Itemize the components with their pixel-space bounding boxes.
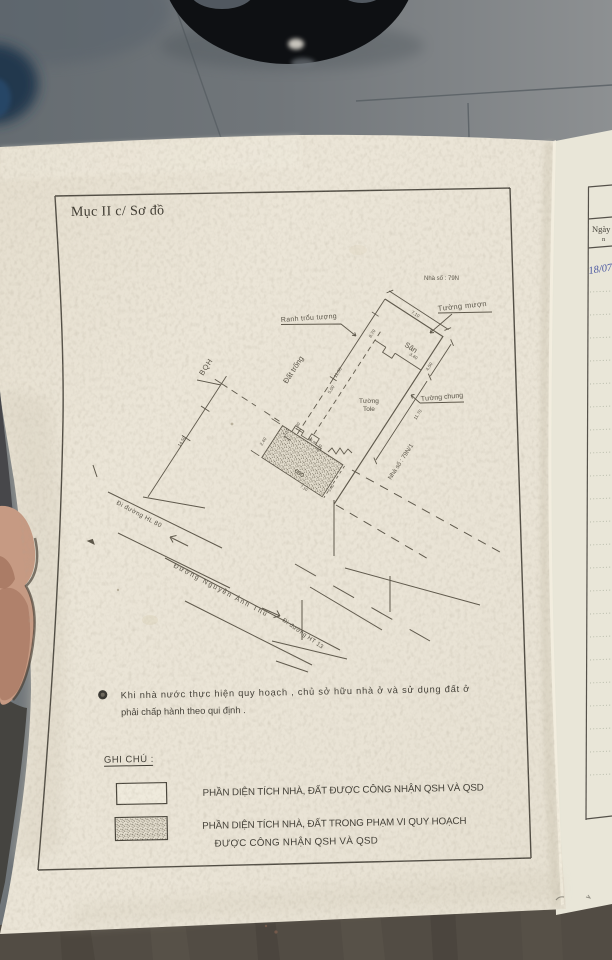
svg-text:Ngày: Ngày [592,224,611,234]
